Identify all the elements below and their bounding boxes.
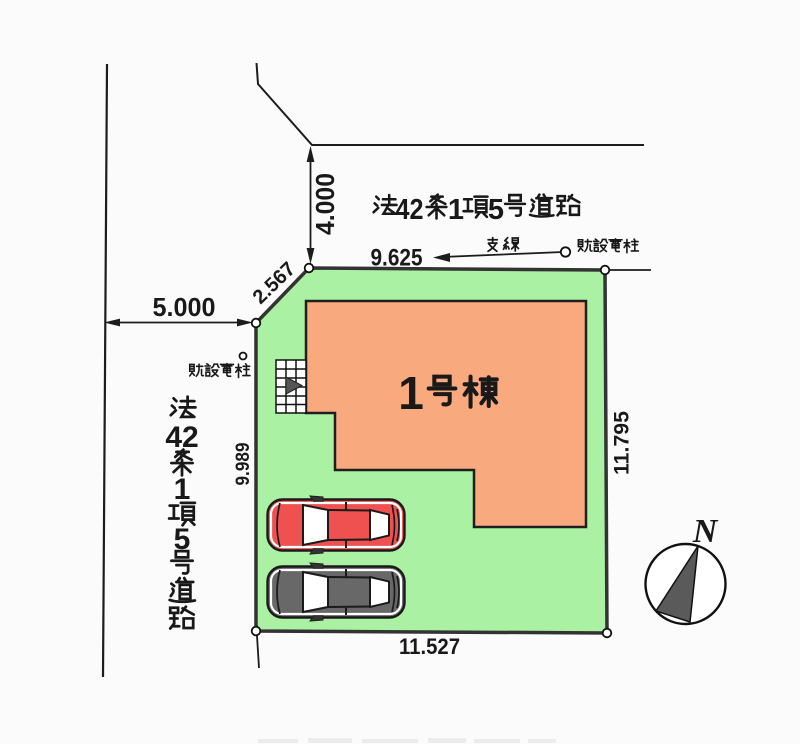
svg-text:N: N xyxy=(692,513,719,550)
svg-text:5.000: 5.000 xyxy=(153,292,216,322)
svg-text:9.625: 9.625 xyxy=(371,245,423,272)
svg-text:5: 5 xyxy=(488,194,504,226)
svg-text:42: 42 xyxy=(396,194,424,226)
svg-text:11.795: 11.795 xyxy=(611,411,634,475)
svg-text:1: 1 xyxy=(398,367,424,419)
svg-text:4.000: 4.000 xyxy=(310,173,340,235)
svg-text:9.989: 9.989 xyxy=(233,443,254,486)
svg-text:1: 1 xyxy=(448,194,464,226)
svg-text:1: 1 xyxy=(174,473,191,506)
svg-text:11.527: 11.527 xyxy=(399,634,460,659)
